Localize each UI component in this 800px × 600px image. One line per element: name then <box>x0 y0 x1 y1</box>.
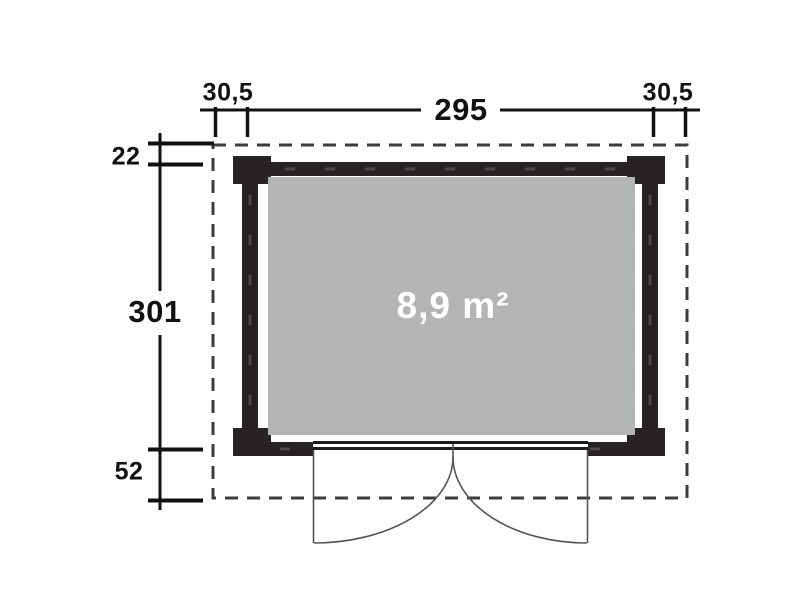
corner-post-bottom-left <box>233 428 271 456</box>
dimension-label-front-offset: 52 <box>115 458 144 487</box>
dimension-label-back-offset: 22 <box>112 143 141 172</box>
wall-left <box>242 162 258 456</box>
double-door <box>314 444 588 543</box>
floor-area-label: 8,9 m² <box>397 285 510 327</box>
dimension-label-outer-width: 295 <box>434 92 487 128</box>
corner-post-top-left <box>233 156 271 184</box>
dimension-label-overhang-left: 30,5 <box>203 79 254 108</box>
door-swing-arc-right <box>453 457 587 543</box>
door-threshold <box>313 443 588 449</box>
wall-right <box>642 162 658 456</box>
door-swing-arc-left <box>314 457 453 543</box>
dimension-label-outer-depth: 301 <box>128 294 181 330</box>
floor-plan-canvas: 30,5 295 30,5 22 301 52 8,9 m² <box>0 0 800 600</box>
dimension-label-overhang-right: 30,5 <box>643 79 694 108</box>
